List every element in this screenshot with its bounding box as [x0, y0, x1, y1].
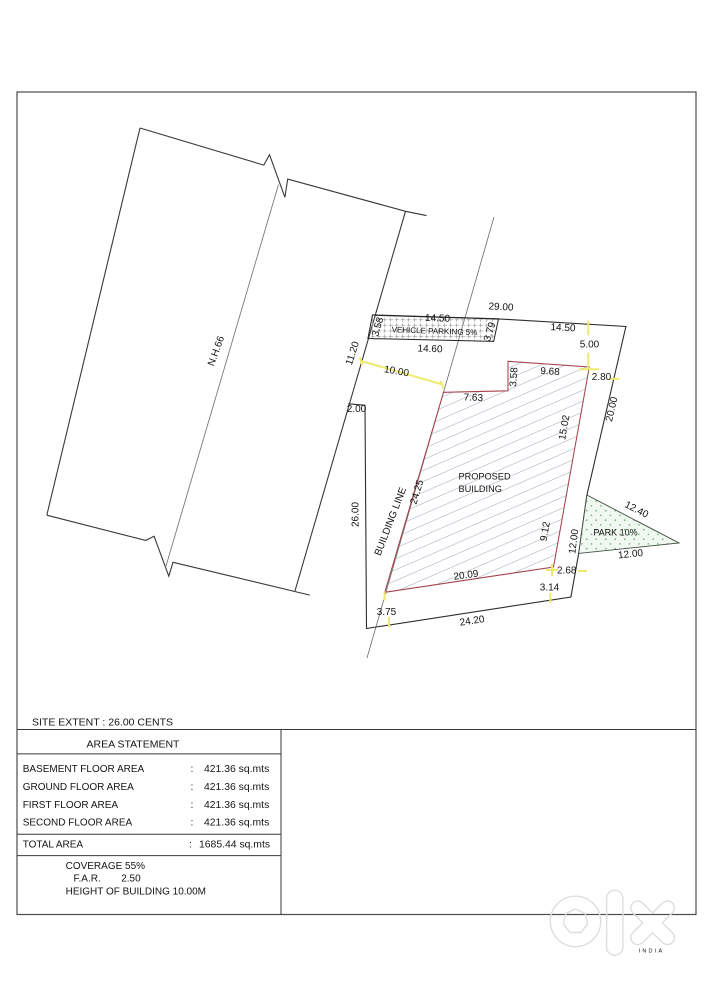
svg-text::: :: [189, 839, 192, 851]
svg-text:26.00: 26.00: [351, 502, 362, 527]
svg-text:SITE EXTENT : 26.00 CENTS: SITE EXTENT : 26.00 CENTS: [32, 717, 173, 729]
svg-text:14.60: 14.60: [417, 343, 443, 355]
svg-text:421.36 sq.mts: 421.36 sq.mts: [204, 800, 269, 811]
svg-text:BUILDING: BUILDING: [459, 484, 502, 494]
svg-text:9.68: 9.68: [540, 366, 561, 378]
svg-text:3.14: 3.14: [540, 582, 560, 593]
svg-text:AREA STATEMENT: AREA STATEMENT: [87, 739, 181, 751]
svg-text:HEIGHT OF BUILDING 10.00M: HEIGHT OF BUILDING 10.00M: [66, 886, 206, 897]
svg-text:421.36 sq.mts: 421.36 sq.mts: [204, 817, 269, 828]
svg-text:F.A.R.: F.A.R.: [74, 874, 101, 885]
svg-text:5.00: 5.00: [580, 340, 600, 351]
svg-text::: :: [191, 781, 194, 793]
svg-text:14.50: 14.50: [425, 313, 451, 325]
svg-text:FIRST FLOOR AREA: FIRST FLOOR AREA: [23, 800, 119, 811]
svg-text:421.36 sq.mts: 421.36 sq.mts: [204, 782, 269, 793]
svg-text::: :: [191, 763, 194, 775]
svg-text:SECOND FLOOR AREA: SECOND FLOOR AREA: [23, 817, 133, 828]
svg-text:2.00: 2.00: [347, 404, 367, 415]
svg-text:1685.44 sq.mts: 1685.44 sq.mts: [199, 840, 270, 851]
svg-text:7.63: 7.63: [463, 392, 483, 404]
svg-text:421.36 sq.mts: 421.36 sq.mts: [204, 764, 269, 775]
svg-text:14.50: 14.50: [550, 322, 576, 334]
svg-text:BASEMENT FLOOR AREA: BASEMENT FLOOR AREA: [23, 764, 145, 775]
svg-text:INDIA: INDIA: [639, 949, 665, 955]
svg-text::: :: [191, 816, 194, 828]
svg-text:3.58: 3.58: [508, 367, 520, 388]
svg-text:2.80: 2.80: [592, 372, 612, 383]
svg-text:2.50: 2.50: [121, 874, 141, 885]
svg-text:2.68: 2.68: [557, 566, 577, 577]
svg-text::: :: [191, 799, 194, 811]
svg-text:COVERAGE 55%: COVERAGE 55%: [66, 861, 146, 872]
svg-text:29.00: 29.00: [488, 301, 514, 313]
svg-text:TOTAL AREA: TOTAL AREA: [23, 840, 84, 851]
svg-text:PROPOSED: PROPOSED: [459, 472, 511, 482]
svg-text:GROUND FLOOR AREA: GROUND FLOOR AREA: [23, 782, 134, 793]
svg-text:PARK 10%: PARK 10%: [593, 528, 637, 538]
svg-text:3.75: 3.75: [377, 607, 397, 618]
